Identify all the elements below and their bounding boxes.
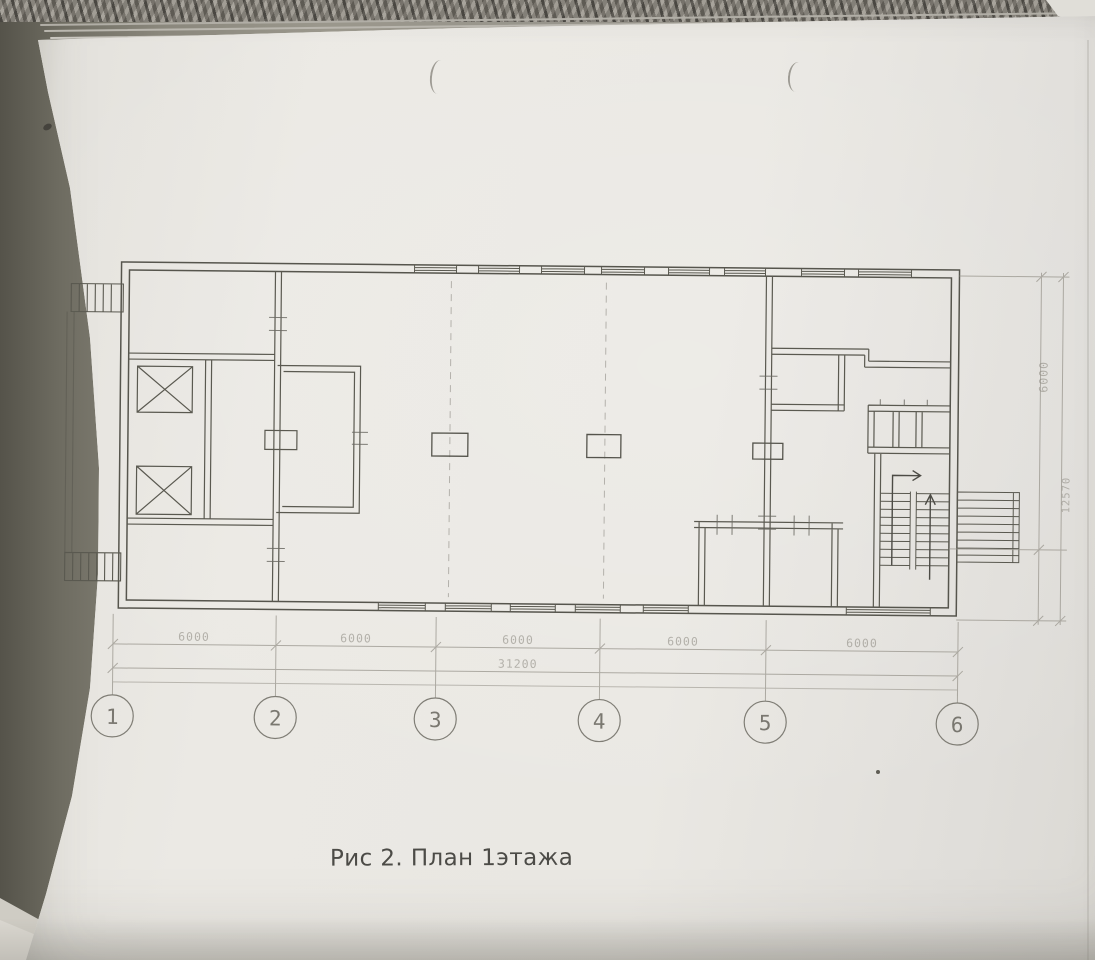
ink-speck: [876, 770, 880, 774]
interior-walls: [126, 270, 951, 608]
exterior-stairs-left: [65, 283, 124, 581]
axis-bubbles: [91, 695, 978, 746]
axis-bubble-label: 4: [593, 710, 606, 734]
side-dimension-label-lower: 12570: [1060, 477, 1072, 514]
total-dimension-label: 31200: [498, 657, 538, 671]
bay-dimension-label: 6000: [178, 630, 210, 644]
bay-dimension-label: 6000: [846, 636, 878, 650]
side-dimension-label-upper: 6000: [1036, 361, 1050, 393]
axis-bubble-label: 2: [269, 706, 282, 730]
building-outline: [118, 262, 959, 616]
dimension-lines: [107, 263, 1069, 704]
bay-dimension-label: 6000: [340, 631, 372, 645]
dashed-axis-lines: [448, 281, 606, 598]
axis-bubble-label: 5: [759, 711, 772, 735]
axis-bubble-label: 3: [429, 708, 442, 732]
axis-bubble-label: 1: [106, 705, 119, 729]
photo-bottom-shadow: [0, 918, 1095, 960]
window-symbols: [378, 264, 933, 615]
floor-plan-drawing: 6000 6000 6000 6000 6000 31200 6000 1257…: [0, 0, 1095, 960]
bay-dimension-label: 6000: [502, 633, 534, 647]
column-markers: [432, 433, 783, 459]
photographed-document: 6000 6000 6000 6000 6000 31200 6000 1257…: [0, 0, 1095, 960]
figure-caption: Рис 2. План 1этажа: [330, 844, 690, 879]
bay-dimension-label: 6000: [667, 634, 699, 648]
axis-bubble-label: 6: [951, 713, 964, 737]
